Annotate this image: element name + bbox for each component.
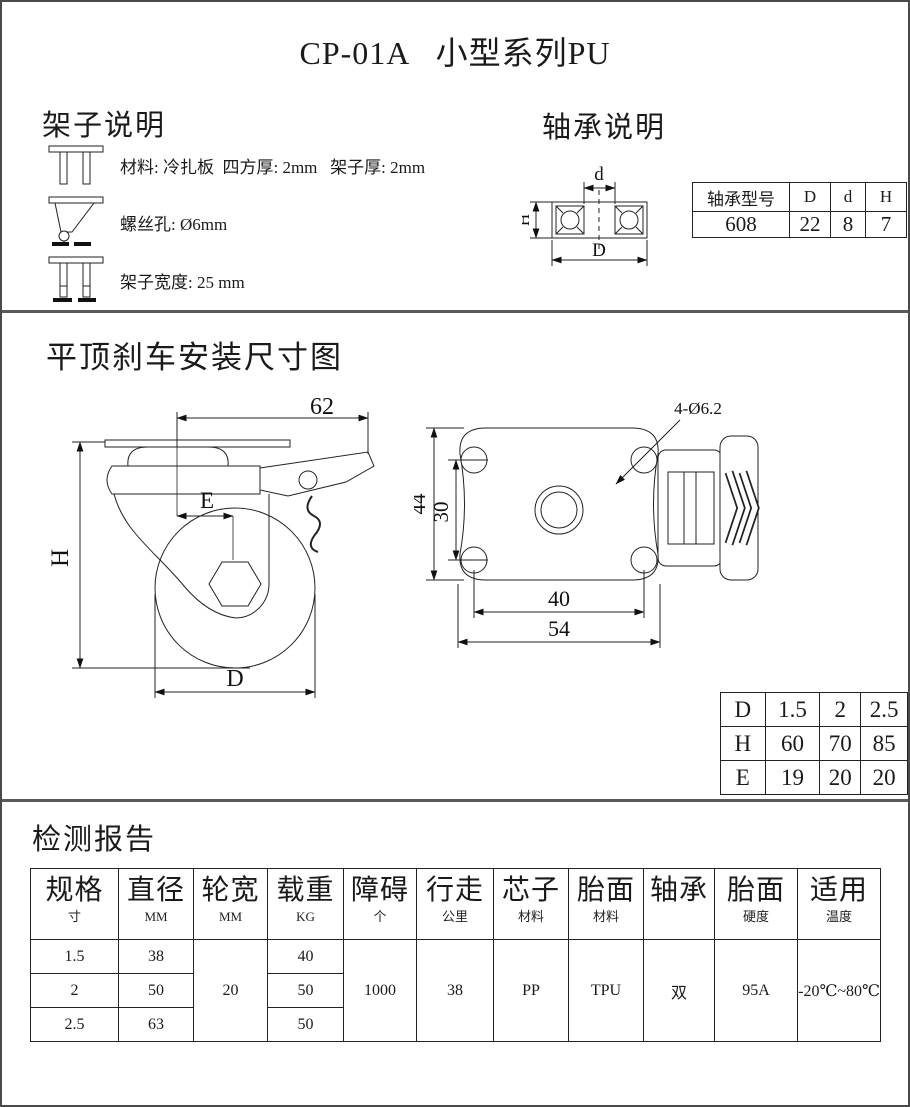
dim-54-label: 54	[548, 616, 570, 641]
col-size: 规格寸	[31, 869, 119, 940]
holes-note-label: 4-Ø6.2	[674, 400, 722, 418]
report-spec-row: 1.5 38 20 40 1000 38 PP TPU 双 95A -20℃~8…	[31, 940, 881, 974]
frame-item-width-text: 架子宽度: 25 mm	[120, 268, 245, 293]
bearing-col-d: d	[831, 183, 866, 212]
frame-width-icon	[46, 254, 106, 306]
col-temperature: 适用温度	[798, 869, 881, 940]
size-value: 2.5	[31, 1008, 119, 1042]
bearing-model-value: 608	[693, 212, 790, 238]
dhe-value: 2.5	[861, 693, 908, 727]
mounting-plate-top-view-drawing: 4-Ø6.2 44 30 40 54	[414, 400, 766, 662]
distance-value: 38	[417, 940, 494, 1042]
bearing-D-value: 22	[790, 212, 831, 238]
dhe-value: 60	[765, 727, 820, 761]
frame-item-width: 架子宽度: 25 mm	[46, 254, 245, 306]
wheel-width-value: 20	[194, 940, 268, 1042]
spec-sheet-page: CP-01A 小型系列PU 架子说明 材料: 冷扎板 四方厚: 2mm 架子厚:…	[0, 0, 910, 1107]
dim-40-label: 40	[548, 586, 570, 611]
col-diameter: 直径MM	[119, 869, 194, 940]
bearing-spec-table: 轴承型号 D d H 608 22 8 7	[692, 182, 907, 238]
hardness-value: 95A	[715, 940, 798, 1042]
dhe-value: 20	[861, 761, 908, 795]
frame-item-material: 材料: 冷扎板 四方厚: 2mm 架子厚: 2mm	[46, 142, 425, 188]
col-hardness: 胎面硬度	[715, 869, 798, 940]
dhe-value: 1.5	[765, 693, 820, 727]
bearing-dim-d-label: d	[594, 164, 604, 185]
bearing-dim-D-label: D	[592, 240, 606, 261]
table-row: 轴承型号 D d H	[693, 183, 907, 212]
frame-bracket-icon	[46, 142, 106, 188]
section-divider	[2, 310, 908, 313]
bearing-col-D: D	[790, 183, 831, 212]
dim-44-label: 44	[414, 493, 430, 515]
table-row: E 19 20 20	[721, 761, 908, 795]
dhe-key: E	[721, 761, 766, 795]
bearing-section-heading: 轴承说明	[542, 104, 666, 146]
dim-62-label: 62	[310, 398, 334, 420]
table-row: H 60 70 85	[721, 727, 908, 761]
col-load: 载重KG	[268, 869, 344, 940]
bearing-col-model: 轴承型号	[693, 183, 790, 212]
dhe-key: D	[721, 693, 766, 727]
report-section-heading: 检测报告	[32, 816, 156, 858]
core-material-value: PP	[494, 940, 569, 1042]
caster-side-view-drawing: 62 E H D	[50, 398, 384, 710]
col-obstacle: 障碍个	[344, 869, 417, 940]
dhe-value: 70	[820, 727, 861, 761]
drawing-section-heading: 平顶刹车安装尺寸图	[46, 332, 343, 377]
size-value: 2	[31, 974, 119, 1008]
dhe-value: 85	[861, 727, 908, 761]
table-row: D 1.5 2 2.5	[721, 693, 908, 727]
col-distance: 行走公里	[417, 869, 494, 940]
load-value: 40	[268, 940, 344, 974]
bearing-d-value: 8	[831, 212, 866, 238]
dhe-value: 2	[820, 693, 861, 727]
bearing-cross-section-diagram: d D H	[522, 160, 667, 278]
bearing-col-H: H	[866, 183, 907, 212]
dim-30-label: 30	[429, 502, 453, 523]
dhe-value: 20	[820, 761, 861, 795]
dim-E-label: E	[200, 488, 214, 513]
diameter-value: 63	[119, 1008, 194, 1042]
diameter-value: 38	[119, 940, 194, 974]
bearing-H-value: 7	[866, 212, 907, 238]
diameter-value: 50	[119, 974, 194, 1008]
table-row: 608 22 8 7	[693, 212, 907, 238]
page-title: CP-01A 小型系列PU	[2, 28, 908, 74]
dhe-dimension-table: D 1.5 2 2.5 H 60 70 85 E 19 20 20	[720, 692, 908, 795]
report-header-row: 规格寸 直径MM 轮宽MM 载重KG 障碍个 行走公里 芯子材料 胎面材料 轴承…	[31, 869, 881, 940]
col-tread-material: 胎面材料	[569, 869, 644, 940]
tread-material-value: TPU	[569, 940, 644, 1042]
frame-fork-screw-icon	[46, 194, 106, 250]
frame-item-screw-hole: 螺丝孔: Ø6mm	[46, 194, 227, 250]
col-wheel-width: 轮宽MM	[194, 869, 268, 940]
frame-section-heading: 架子说明	[42, 102, 166, 144]
dhe-value: 19	[765, 761, 820, 795]
dhe-key: H	[721, 727, 766, 761]
dim-D-label: D	[226, 666, 243, 692]
load-value: 50	[268, 974, 344, 1008]
test-report-table: 规格寸 直径MM 轮宽MM 载重KG 障碍个 行走公里 芯子材料 胎面材料 轴承…	[30, 868, 881, 1042]
bearing-dim-H-label: H	[522, 214, 533, 226]
col-core-material: 芯子材料	[494, 869, 569, 940]
col-bearing: 轴承	[644, 869, 715, 940]
dim-H-label: H	[50, 549, 74, 567]
size-value: 1.5	[31, 940, 119, 974]
frame-item-material-text: 材料: 冷扎板 四方厚: 2mm 架子厚: 2mm	[120, 153, 425, 178]
frame-item-screw-hole-text: 螺丝孔: Ø6mm	[120, 210, 227, 235]
obstacle-value: 1000	[344, 940, 417, 1042]
section-divider	[2, 799, 908, 802]
temperature-value: -20℃~80℃	[798, 940, 881, 1042]
load-value: 50	[268, 1008, 344, 1042]
bearing-value: 双	[644, 940, 715, 1042]
